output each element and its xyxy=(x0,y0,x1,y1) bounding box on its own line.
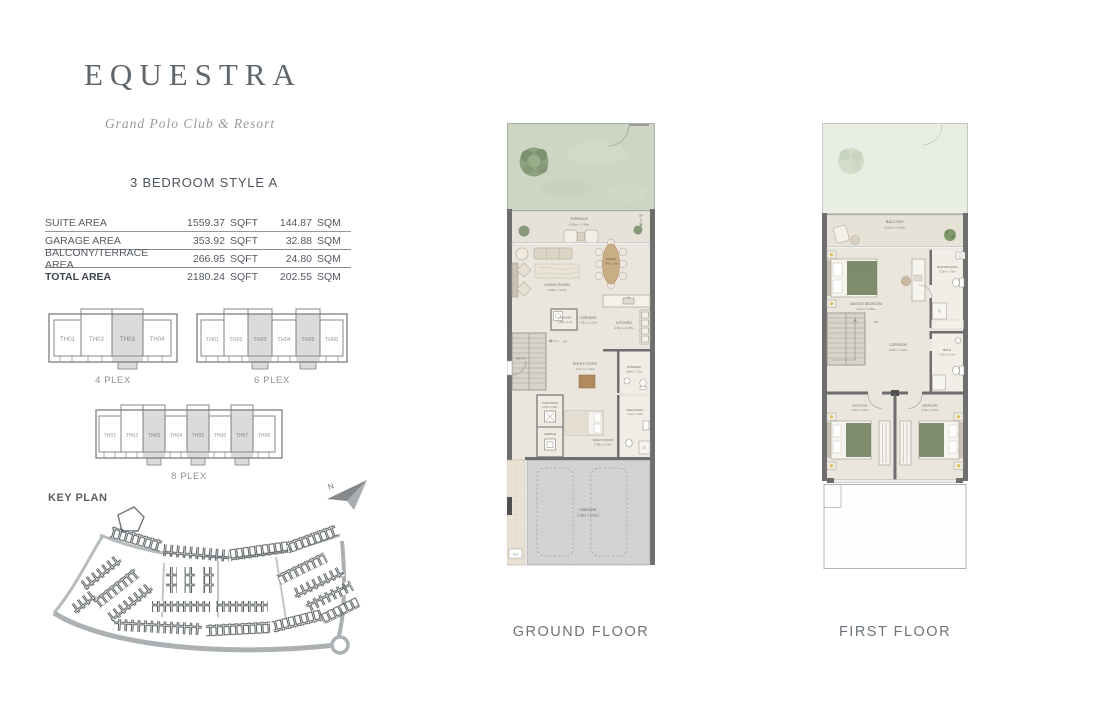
key-plan-title: KEY PLAN xyxy=(48,492,107,504)
sqm-unit: SQM xyxy=(312,217,351,229)
room-dims: 1.88m x 1.71m xyxy=(625,370,642,374)
room-dims: 4.76m x 3.99m xyxy=(856,307,876,311)
sink-icon xyxy=(643,421,649,430)
media-unit xyxy=(512,263,518,297)
room-label: MASTER BATH xyxy=(937,265,957,269)
table-row-total: TOTAL AREA 2180.24 SQFT 202.55 SQM xyxy=(45,268,351,285)
room-label: PUMP ROOM xyxy=(542,402,558,405)
unit-label: TH04 xyxy=(277,337,290,343)
plant-icon xyxy=(944,229,956,241)
terrace-chair xyxy=(564,230,577,243)
headboard xyxy=(959,422,963,458)
clubhouse xyxy=(118,507,144,531)
wall xyxy=(525,457,650,460)
side-table xyxy=(851,236,860,245)
unit-label: TH03 xyxy=(120,336,136,343)
row-label: SUITE AREA xyxy=(45,217,173,229)
terrace: TERRACE 6.50m x 1.43m UP xyxy=(512,210,650,244)
sqm-unit: SQM xyxy=(312,271,351,283)
plex-6-label: 6 PLEX xyxy=(196,375,348,386)
sqft-unit: SQFT xyxy=(225,235,266,247)
garbage-icon xyxy=(545,439,556,450)
terrace-chair xyxy=(585,230,598,243)
plex-diagram-6: TH01 TH02 TH03 TH04 TH05 TH06 6 PLEX xyxy=(196,306,348,386)
plex-8-label: 8 PLEX xyxy=(95,471,283,482)
room-label: MAID'S ROOM xyxy=(593,438,614,442)
wall xyxy=(822,213,827,481)
room-label: CORRIDOR xyxy=(889,343,907,347)
pump-garbage-rooms: PUMP ROOM 0.95m x 0.85m GARBAGE xyxy=(537,395,563,457)
plex-4-label: 4 PLEX xyxy=(48,375,178,386)
roof-outline xyxy=(824,485,966,569)
unit-label: TH04 xyxy=(149,336,165,343)
unit-type-title: 3 BEDROOM STYLE A xyxy=(130,175,278,190)
room-dims: 1.44m x 3.6m xyxy=(604,263,618,266)
unit-label: TH02 xyxy=(229,337,242,343)
room-label: BEDROOM xyxy=(853,404,869,408)
toilet-icon xyxy=(640,379,646,387)
room-dims: 6.52m x 1.40m xyxy=(885,226,906,230)
row-label: TOTAL AREA xyxy=(45,271,173,283)
sink-icon xyxy=(623,298,634,304)
plex-diagram-4: TH01 TH02 TH03 TH04 4 PLEX xyxy=(48,306,178,386)
first-floor-caption: FIRST FLOOR xyxy=(822,624,968,640)
room-dims: 3.98m x 3.8m xyxy=(548,288,567,292)
rug xyxy=(535,264,579,278)
sqm-value: 144.87 xyxy=(266,217,312,229)
room-label: MASTER BEDROOM xyxy=(850,302,882,306)
unit-label: TH06 xyxy=(214,433,226,439)
sqft-unit: SQFT xyxy=(225,271,266,283)
room-label: MAID'S BATH xyxy=(627,408,644,412)
room-dims: 3.20m x 1.70m xyxy=(939,270,956,273)
sqft-unit: SQFT xyxy=(225,217,266,229)
headboard xyxy=(827,422,831,458)
sink-icon xyxy=(956,252,965,259)
row-label: BALCONY/TERRACE AREA xyxy=(45,247,173,271)
shower-icon xyxy=(933,375,946,390)
room-dims: 6.50m x 1.43m xyxy=(569,223,590,227)
terrace-table xyxy=(578,233,585,241)
room-dims: 2.45m x 2.04m xyxy=(594,442,611,446)
garden xyxy=(508,124,655,211)
unit-label: TH08 xyxy=(258,433,270,439)
dn-label: DN xyxy=(874,320,878,324)
side-table xyxy=(516,248,528,260)
unit-label: TH05 xyxy=(301,337,314,343)
sqm-value: 202.55 xyxy=(266,271,312,283)
balcony: BALCONY 6.52m x 1.40m xyxy=(827,214,963,247)
ground-floor-plan: TERRACE 6.50m x 1.43m UP LIVING RO xyxy=(507,123,655,571)
plex-4-drawing: TH01 TH02 TH03 TH04 xyxy=(48,306,178,372)
table-row: SUITE AREA 1559.37 SQFT 144.87 SQM xyxy=(45,214,351,232)
headboard xyxy=(827,260,831,296)
closet xyxy=(932,320,964,329)
sqft-value: 2180.24 xyxy=(173,271,225,283)
room-label: LAUNDRY xyxy=(558,316,572,320)
brand-title: EQUESTRA xyxy=(84,57,296,93)
room-dims: 1.28m x 1.0m xyxy=(557,321,572,324)
room-dims: 0.95m x 0.85m xyxy=(542,407,557,409)
plant-icon xyxy=(519,226,530,237)
sqft-value: 266.95 xyxy=(173,253,225,265)
wall xyxy=(507,209,512,460)
first-floor-plan: BALCONY 6.52m x 1.40m xyxy=(822,123,968,571)
brochure-page: EQUESTRA Grand Polo Club & Resort 3 BEDR… xyxy=(0,0,1102,707)
up-label: UP xyxy=(563,340,567,344)
shower-icon xyxy=(639,441,650,454)
room-label: GARAGE xyxy=(579,507,596,512)
maids-bath: MAID'S BATH 1.91m x 1.20m xyxy=(617,395,650,460)
ground-floor-caption: GROUND FLOOR xyxy=(507,624,655,640)
room-label: GARBAGE xyxy=(544,433,557,436)
sqm-value: 24.80 xyxy=(266,253,312,265)
plex-6-drawing: TH01 TH02 TH03 TH04 TH05 TH06 xyxy=(196,306,348,372)
wall xyxy=(650,209,655,565)
rm-label: RM xyxy=(513,553,518,557)
roundabout xyxy=(332,637,348,653)
up-label: UP xyxy=(639,214,643,218)
sqm-unit: SQM xyxy=(312,235,351,247)
plant-icon xyxy=(634,226,643,235)
room-dims: 1.91m x 1.20m xyxy=(627,413,643,416)
room-label: TERRACE xyxy=(570,217,589,221)
unit-label: TH04 xyxy=(170,433,182,439)
sink-icon xyxy=(955,338,961,344)
room-dims: 3.31m x 1.33m xyxy=(575,367,595,371)
sqm-unit: SQM xyxy=(312,253,351,265)
room-label: POWDER xyxy=(627,365,642,369)
room-dims: 5.50m x 5.50m xyxy=(577,514,599,518)
unit-label: TH02 xyxy=(89,336,105,343)
room-label: DINING xyxy=(606,257,617,261)
laundry: LAUNDRY 1.28m x 1.0m xyxy=(551,309,577,330)
sofa-icon xyxy=(534,248,572,259)
shower-icon xyxy=(933,303,947,319)
unit-label: TH01 xyxy=(104,433,116,439)
brand-tagline: Grand Polo Club & Resort xyxy=(84,116,296,132)
toilet-icon xyxy=(953,278,960,286)
wardrobe xyxy=(900,421,911,465)
sqft-value: 1559.37 xyxy=(173,217,225,229)
table-row: BALCONY/TERRACE AREA 266.95 SQFT 24.80 S… xyxy=(45,250,351,268)
room-label: ENTRY FOYER xyxy=(573,362,598,366)
room-label: LIVING ROOM xyxy=(544,283,569,287)
tree-icon xyxy=(520,148,549,177)
room-label: BEDROOM xyxy=(923,404,939,408)
plex-8-drawing: TH01 TH02 TH03 TH04 TH05 TH06 TH07 TH08 xyxy=(95,402,283,468)
room-dims: 4.15m x 3.25m xyxy=(921,408,938,412)
unit-label: TH05 xyxy=(192,433,204,439)
stairs xyxy=(827,313,865,365)
plex-diagram-8: TH01 TH02 TH03 TH04 TH05 TH06 TH07 TH08 … xyxy=(95,402,283,482)
walkway: RM xyxy=(507,460,525,565)
sink-icon xyxy=(624,378,630,384)
sqft-value: 353.92 xyxy=(173,235,225,247)
unit-label: TH07 xyxy=(236,433,248,439)
console-table xyxy=(579,375,595,388)
unit-label: TH01 xyxy=(206,337,219,343)
garage: GARAGE 5.50m x 5.50m xyxy=(527,460,650,565)
unit-label: TH03 xyxy=(148,433,160,439)
key-plan-map xyxy=(48,505,373,657)
entry-door-opening xyxy=(507,361,512,375)
unit-label: TH06 xyxy=(325,337,338,343)
room-label: CORRIDOR xyxy=(579,316,597,320)
room-dims: 4.15m x 3.25m xyxy=(851,408,868,412)
room-label: BALCONY xyxy=(886,220,905,224)
ghost-garden xyxy=(823,124,968,214)
room-label: BATH xyxy=(943,348,951,352)
toilet-icon xyxy=(953,366,960,374)
room-dims: 2.80m x 2.08m xyxy=(614,326,634,330)
sqft-unit: SQFT xyxy=(225,253,266,265)
area-table: SUITE AREA 1559.37 SQFT 144.87 SQM GARAG… xyxy=(45,214,351,285)
unit-label: TH01 xyxy=(60,336,76,343)
sqm-value: 32.88 xyxy=(266,235,312,247)
wardrobe xyxy=(879,421,890,465)
room-label: KITCHEN xyxy=(616,321,632,325)
bath: BATH 2.73m x 1.70m xyxy=(930,331,965,394)
desk-chair xyxy=(902,277,911,286)
north-label: N xyxy=(327,481,336,492)
toilet-icon xyxy=(626,439,632,447)
row-label: GARAGE AREA xyxy=(45,235,173,247)
unit-label: TH03 xyxy=(253,337,266,343)
room-dims: 3.28m x 1.15m xyxy=(579,321,598,325)
room-dims: 2.73m x 1.70m xyxy=(938,352,955,356)
room-dims: 3.69m x 1.25m xyxy=(889,348,908,352)
unit-label: TH02 xyxy=(126,433,138,439)
room-label: ENTRY xyxy=(516,357,526,361)
